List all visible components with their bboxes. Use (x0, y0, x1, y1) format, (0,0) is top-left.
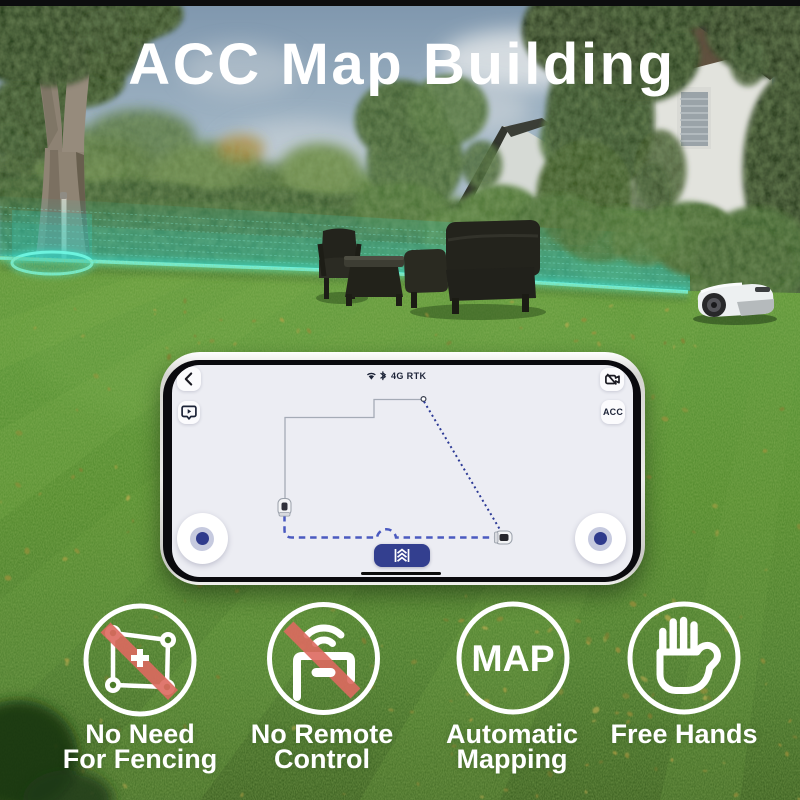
svg-text:MAP: MAP (471, 637, 554, 679)
